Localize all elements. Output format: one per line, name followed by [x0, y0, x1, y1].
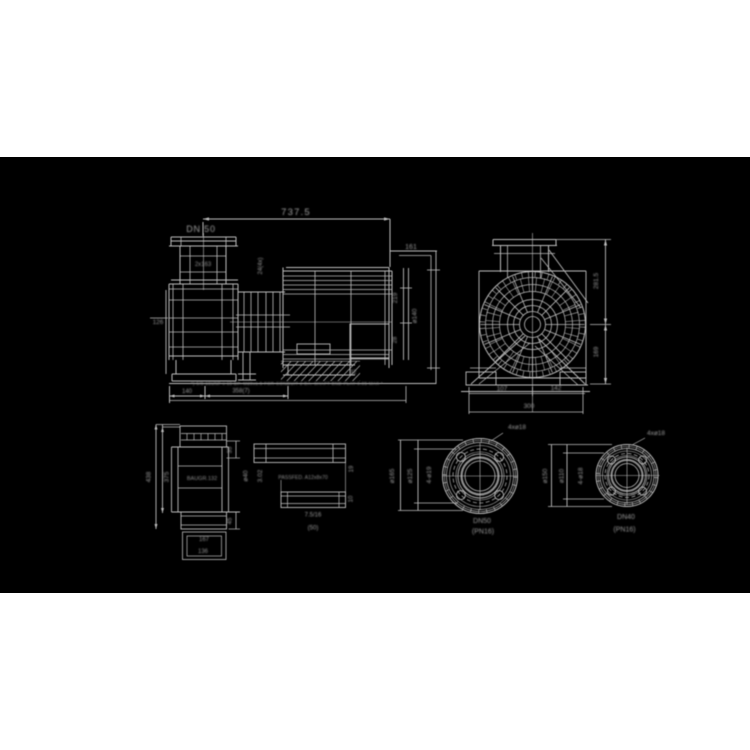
svg-text:ø150: ø150 — [542, 468, 549, 483]
svg-text:300: 300 — [524, 403, 535, 410]
svg-text:32: 32 — [350, 370, 357, 376]
svg-text:281.5: 281.5 — [593, 272, 600, 289]
svg-text:219: 219 — [392, 292, 399, 303]
svg-text:4-ø19: 4-ø19 — [426, 466, 433, 483]
svg-text:19: 19 — [349, 465, 355, 472]
svg-text:*) 5/8-16UNF x 19 DP. M20x1.5: *) 5/8-16UNF x 19 DP. M20x1.5 FOR CONDUI… — [191, 381, 383, 386]
svg-text:ø40: ø40 — [243, 470, 250, 482]
svg-text:375: 375 — [164, 471, 171, 482]
svg-text:DN40: DN40 — [617, 514, 635, 521]
svg-text:737.5: 737.5 — [281, 207, 311, 218]
svg-text:4xø18: 4xø18 — [508, 424, 526, 431]
svg-text:7.5/16: 7.5/16 — [305, 513, 322, 519]
svg-text:438: 438 — [146, 471, 153, 482]
svg-text:10: 10 — [349, 495, 355, 502]
svg-text:140: 140 — [182, 389, 193, 395]
svg-text:167: 167 — [199, 537, 210, 543]
svg-text:ø110: ø110 — [559, 468, 566, 483]
svg-text:BAUGR.132: BAUGR.132 — [187, 476, 217, 482]
svg-text:4-ø18: 4-ø18 — [578, 467, 585, 484]
svg-text:107: 107 — [497, 386, 508, 393]
svg-text:161: 161 — [405, 244, 417, 251]
svg-text:ø165: ø165 — [389, 468, 396, 483]
svg-text:(PN16): (PN16) — [613, 527, 635, 534]
svg-text:3.02: 3.02 — [257, 469, 264, 482]
svg-text:45: 45 — [228, 517, 234, 524]
svg-text:136: 136 — [198, 549, 209, 555]
svg-text:2x163: 2x163 — [195, 262, 212, 268]
svg-text:PASSFED. A12x8x70: PASSFED. A12x8x70 — [278, 475, 328, 481]
svg-text:142: 142 — [551, 385, 562, 392]
svg-text:24(4x): 24(4x) — [258, 257, 264, 274]
svg-text:DN50: DN50 — [473, 518, 491, 525]
svg-text:126: 126 — [153, 319, 164, 326]
svg-text:169: 169 — [593, 346, 600, 357]
svg-text:(PN16): (PN16) — [472, 529, 494, 536]
svg-text:DN 50: DN 50 — [186, 224, 216, 234]
svg-text:ø125: ø125 — [407, 468, 414, 483]
svg-text:(50): (50) — [308, 526, 319, 532]
svg-text:ø140: ø140 — [412, 308, 419, 323]
svg-text:4xø18: 4xø18 — [647, 430, 665, 437]
svg-text:28: 28 — [393, 336, 399, 343]
svg-text:358(7): 358(7) — [232, 389, 249, 395]
